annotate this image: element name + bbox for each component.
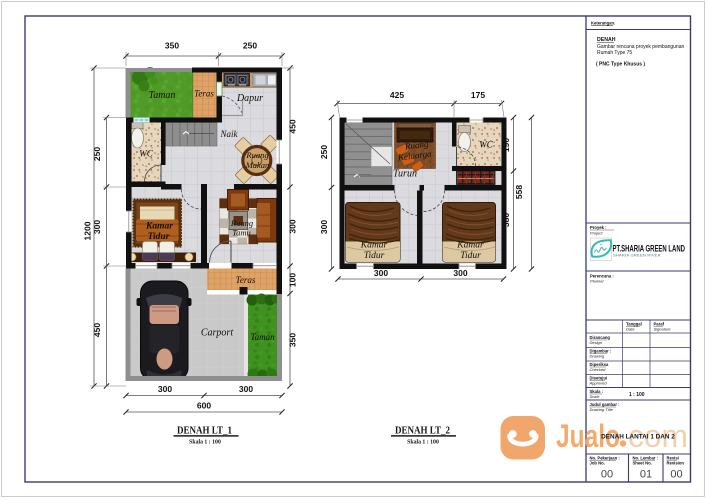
svg-text:Date: Date <box>626 327 635 332</box>
svg-text:380: 380 <box>501 213 511 227</box>
svg-text:DENAH LT_1: DENAH LT_1 <box>177 426 232 437</box>
svg-text:175: 175 <box>471 90 485 100</box>
svg-text:Teras: Teras <box>194 89 214 99</box>
svg-text:Design: Design <box>590 340 603 345</box>
svg-text:300: 300 <box>453 268 467 278</box>
svg-text:450: 450 <box>288 119 298 133</box>
svg-text:Skala 1 : 100: Skala 1 : 100 <box>189 439 221 445</box>
svg-text:Signature: Signature <box>654 327 672 332</box>
svg-text:Approved: Approved <box>589 381 608 386</box>
svg-text:300: 300 <box>319 220 329 234</box>
svg-text:Turun: Turun <box>393 169 417 180</box>
svg-text:Project: Project <box>590 231 603 236</box>
svg-text:600: 600 <box>197 401 211 411</box>
svg-text:Naik: Naik <box>220 129 239 139</box>
svg-text:425: 425 <box>390 90 404 100</box>
svg-text:DENAH LANTAI 1 DAN 2: DENAH LANTAI 1 DAN 2 <box>601 434 675 441</box>
svg-text:Drawing Title: Drawing Title <box>590 407 614 412</box>
svg-text:190: 190 <box>501 138 511 152</box>
svg-text:Ruang: Ruang <box>230 218 253 228</box>
svg-text:00: 00 <box>670 469 682 481</box>
svg-text:Checked: Checked <box>590 367 607 372</box>
svg-text:350: 350 <box>165 41 179 51</box>
svg-text:Keterangan.: Keterangan. <box>591 21 615 26</box>
svg-text:Kamar: Kamar <box>360 241 388 251</box>
svg-text:Drawing: Drawing <box>590 354 605 359</box>
svg-text:Teras: Teras <box>236 275 256 285</box>
svg-text:250: 250 <box>319 145 329 159</box>
svg-text:Sheet No.: Sheet No. <box>633 461 652 466</box>
svg-text:300: 300 <box>239 384 253 394</box>
svg-text:Tidur: Tidur <box>460 251 481 261</box>
svg-text:Skala 1 : 100: Skala 1 : 100 <box>407 439 439 445</box>
svg-text:Kamar: Kamar <box>145 222 173 232</box>
svg-text:SHARIA GREEN RIVER: SHARIA GREEN RIVER <box>613 252 661 257</box>
svg-text:300: 300 <box>374 268 388 278</box>
svg-text:250: 250 <box>243 41 257 51</box>
svg-text:Job No.: Job No. <box>590 461 605 466</box>
svg-text:DENAH LT_2: DENAH LT_2 <box>395 426 450 437</box>
svg-text:Kamar: Kamar <box>456 241 484 251</box>
svg-text:Tamu: Tamu <box>232 228 251 238</box>
svg-text:300: 300 <box>92 220 102 234</box>
svg-text:558: 558 <box>514 185 524 199</box>
svg-text:Proyek :: Proyek : <box>590 225 607 230</box>
svg-text:Scale: Scale <box>590 394 601 399</box>
svg-text:Rumah Type 75: Rumah Type 75 <box>597 50 632 56</box>
svg-text:WC: WC <box>479 140 493 150</box>
svg-text:Revision: Revision <box>667 461 685 466</box>
svg-text:00: 00 <box>601 469 613 481</box>
svg-text:Taman: Taman <box>250 332 275 342</box>
svg-text:Planner: Planner <box>590 279 604 284</box>
svg-text:450: 450 <box>92 323 102 337</box>
svg-text:Taman: Taman <box>149 90 176 101</box>
svg-text:Tidur: Tidur <box>364 251 385 261</box>
svg-text:( PNC Type Khusus ): ( PNC Type Khusus ) <box>596 62 645 68</box>
svg-text:Tidur: Tidur <box>148 232 170 242</box>
svg-text:Makan: Makan <box>245 160 270 170</box>
svg-text:WC: WC <box>139 149 153 159</box>
svg-text:Dapur: Dapur <box>236 93 263 104</box>
svg-text:300: 300 <box>288 219 298 233</box>
svg-text:01: 01 <box>640 469 652 481</box>
svg-text:1200: 1200 <box>83 221 93 240</box>
svg-text:350: 350 <box>288 333 298 347</box>
svg-text:100: 100 <box>288 273 298 287</box>
svg-text:Carport: Carport <box>201 328 233 339</box>
svg-text:Gambar rencana proyek pembangu: Gambar rencana proyek pembangunan <box>597 44 684 50</box>
svg-text:Ruang: Ruang <box>245 150 268 160</box>
svg-text:250: 250 <box>92 147 102 161</box>
svg-text:1 : 100: 1 : 100 <box>629 392 645 398</box>
svg-text:300: 300 <box>158 384 172 394</box>
